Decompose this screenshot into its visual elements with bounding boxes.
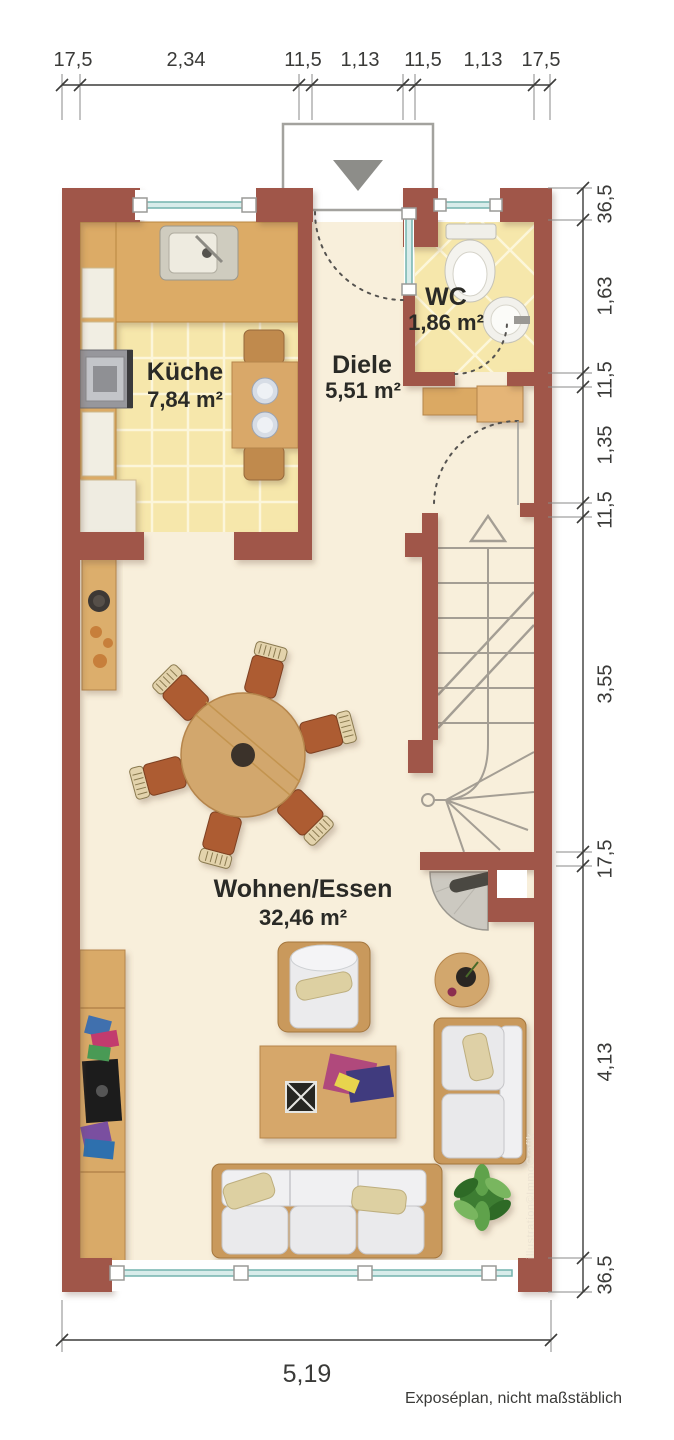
dim-top-4: 11,5 (404, 49, 441, 71)
washbasin (483, 297, 530, 343)
wall-wc-west (403, 292, 415, 382)
room-label-wc: WC (425, 283, 467, 311)
wall-right (534, 188, 552, 1292)
wall-left (62, 188, 80, 1292)
room-label-diele: Diele (332, 351, 392, 379)
dim-right-6: 17,5 (594, 840, 616, 879)
kitchen-window (133, 190, 256, 220)
room-area-kueche: 7,84 m² (147, 387, 223, 412)
dimension-right: 36,5 1,63 11,5 1,35 11,5 3,55 17,5 4,13 … (548, 182, 616, 1298)
kitchen-sink (160, 226, 238, 280)
dim-right-3: 1,35 (594, 426, 616, 465)
room-label-kueche: Küche (147, 358, 224, 386)
footer-note: Exposéplan, nicht maßstäblich (405, 1390, 622, 1407)
dim-right-2: 11,5 (594, 361, 616, 398)
dim-top-3: 1,13 (341, 49, 380, 71)
coffee-table (260, 1046, 396, 1138)
armchair (278, 942, 370, 1032)
room-label-wohnen: Wohnen/Essen (214, 875, 393, 903)
dim-right-5: 3,55 (594, 665, 616, 704)
dim-top-1: 2,34 (167, 49, 206, 71)
room-area-wohnen: 32,46 m² (259, 905, 347, 930)
dimension-bottom: 5,19 (56, 1300, 557, 1388)
dim-top-6: 17,5 (522, 49, 561, 71)
dim-right-0: 36,5 (594, 185, 616, 224)
dim-top-0: 17,5 (54, 49, 93, 71)
room-area-wc: 1,86 m² (408, 310, 484, 335)
understair-niche (497, 870, 527, 898)
room-area-diele: 5,51 m² (325, 378, 401, 403)
wc-window (434, 190, 502, 220)
left-sideboard (82, 556, 116, 690)
floor-plan: Küche 7,84 m² Diele 5,51 m² WC 1,86 m² W… (0, 0, 674, 1440)
tv-sideboard (80, 950, 125, 1262)
side-table (435, 953, 489, 1007)
wall-kitchen-east (298, 222, 312, 560)
sofa-two-seater (434, 1018, 526, 1164)
stove (80, 350, 133, 408)
kitchen-chair (244, 446, 284, 480)
dim-bottom-total: 5,19 (283, 1360, 332, 1388)
dimension-top: 17,5 2,34 11,5 1,13 11,5 1,13 17,5 (54, 49, 561, 120)
floor-plan-page: Küche 7,84 m² Diele 5,51 m² WC 1,86 m² W… (0, 0, 674, 1440)
sofa-three-seater (212, 1164, 442, 1258)
kitchen-chair (244, 330, 284, 364)
dim-right-7: 4,13 (594, 1043, 616, 1082)
entrance-sidelight (402, 208, 416, 295)
dim-top-5: 1,13 (464, 49, 503, 71)
dim-right-4: 11,5 (594, 491, 616, 528)
watermark: illustration©ImmoGrafik (525, 1133, 537, 1259)
dim-right-1: 1,63 (594, 277, 616, 316)
living-room-window (110, 1260, 518, 1291)
dim-right-8: 36,5 (594, 1256, 616, 1295)
dim-top-2: 11,5 (284, 49, 321, 71)
